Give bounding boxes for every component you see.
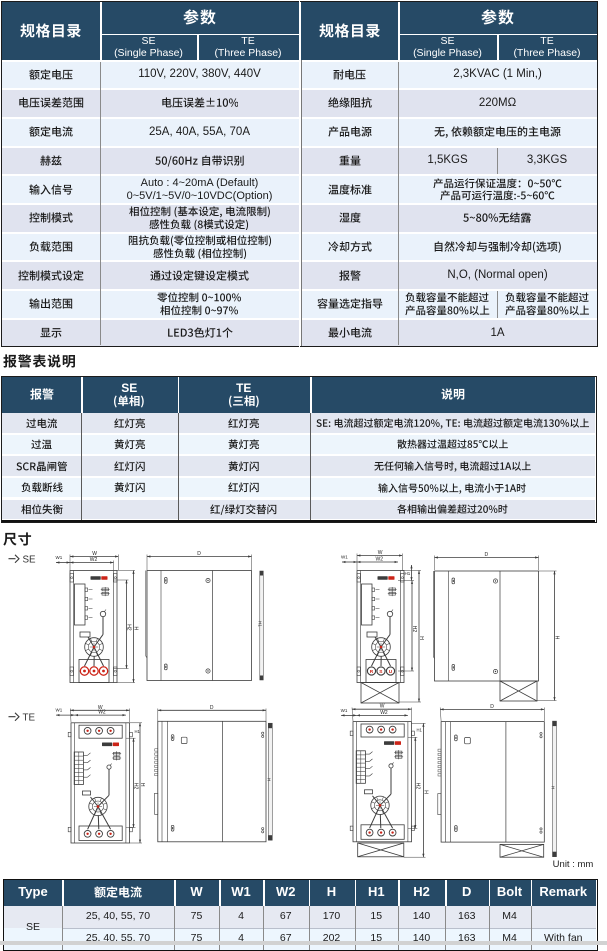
svg-text:W2: W2 <box>90 557 98 563</box>
svg-text:W2: W2 <box>98 710 106 716</box>
svg-text:H: H <box>418 636 424 640</box>
svg-text:U: U <box>389 669 393 675</box>
svg-text:W: W <box>380 704 385 710</box>
svg-text:D: D <box>490 704 494 710</box>
svg-text:H: H <box>551 786 556 789</box>
svg-text:W2: W2 <box>380 710 388 716</box>
svg-text:H2: H2 <box>411 626 417 633</box>
svg-text:D: D <box>197 551 201 557</box>
svg-text:H: H <box>267 778 272 781</box>
svg-text:H: H <box>133 627 139 631</box>
svg-text:H2: H2 <box>126 624 132 631</box>
svg-text:H2: H2 <box>415 783 421 790</box>
svg-text:H: H <box>139 783 145 787</box>
svg-text:H2: H2 <box>133 783 139 790</box>
svg-text:D: D <box>485 552 489 558</box>
svg-text:H1: H1 <box>405 571 411 576</box>
svg-text:S: S <box>379 669 383 675</box>
svg-text:H1: H1 <box>135 729 141 734</box>
svg-text:H: H <box>554 636 560 640</box>
svg-text:W1: W1 <box>341 555 348 560</box>
svg-text:W1: W1 <box>56 708 63 713</box>
svg-text:R: R <box>370 669 374 675</box>
svg-text:W: W <box>378 550 383 556</box>
svg-text:W2: W2 <box>376 557 384 563</box>
svg-text:H: H <box>423 790 429 794</box>
svg-text:H1: H1 <box>258 621 263 627</box>
svg-text:D: D <box>210 705 214 711</box>
svg-text:W1: W1 <box>341 708 348 713</box>
svg-text:H1: H1 <box>417 728 423 733</box>
svg-text:W1: W1 <box>56 555 63 560</box>
